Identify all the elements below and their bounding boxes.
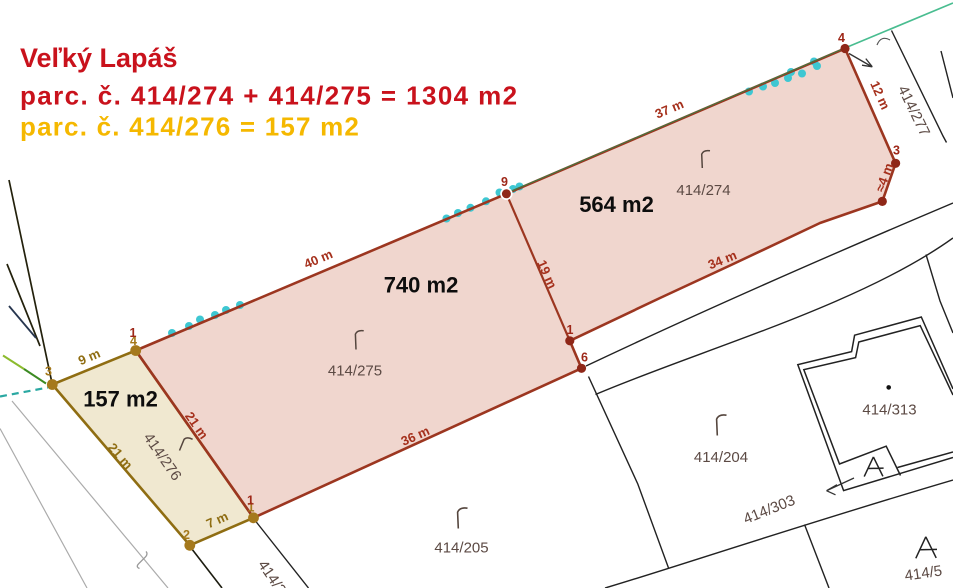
svg-text:414/205: 414/205 <box>434 540 488 557</box>
svg-text:414/274: 414/274 <box>676 182 730 199</box>
svg-text:157 m2: 157 m2 <box>83 387 158 412</box>
svg-text:414/313: 414/313 <box>862 402 916 419</box>
svg-text:4: 4 <box>838 31 845 45</box>
svg-text:414/204: 414/204 <box>694 449 748 466</box>
svg-text:6: 6 <box>581 351 588 365</box>
svg-text:parc. č. 414/276 = 157 m2: parc. č. 414/276 = 157 m2 <box>20 112 360 142</box>
svg-text:Veľký Lapáš: Veľký Lapáš <box>20 43 178 73</box>
svg-text:9: 9 <box>501 175 508 189</box>
svg-text:414/275: 414/275 <box>328 363 382 380</box>
svg-text:parc. č. 414/274 + 414/275 = 1: parc. č. 414/274 + 414/275 = 1304 m2 <box>20 81 519 111</box>
svg-text:1: 1 <box>567 323 574 337</box>
svg-text:3: 3 <box>893 144 900 158</box>
svg-text:1: 1 <box>247 494 254 508</box>
svg-text:3: 3 <box>45 365 52 379</box>
svg-text:740 m2: 740 m2 <box>384 273 459 298</box>
svg-text:2: 2 <box>183 528 190 542</box>
svg-text:1: 1 <box>130 326 137 340</box>
svg-text:564 m2: 564 m2 <box>579 192 654 217</box>
